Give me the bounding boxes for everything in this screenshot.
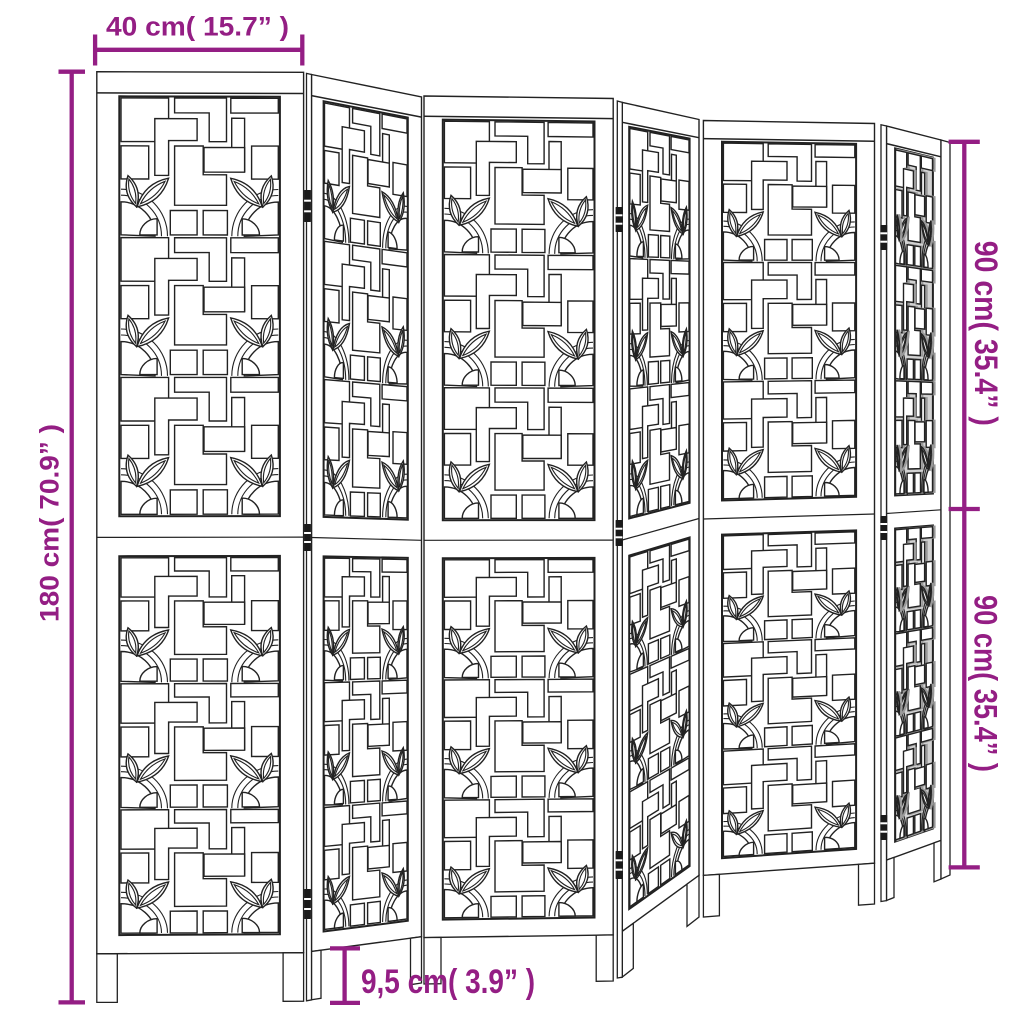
svg-text:90 cm( 35.4” ): 90 cm( 35.4” ) [968,241,1004,426]
svg-text:90 cm( 35.4” ): 90 cm( 35.4” ) [968,595,1004,772]
svg-text:180 cm( 70.9” ): 180 cm( 70.9” ) [34,424,64,622]
svg-text:9,5 cm( 3.9” ): 9,5 cm( 3.9” ) [361,963,535,1001]
svg-text:40 cm( 15.7” ): 40 cm( 15.7” ) [106,12,289,42]
